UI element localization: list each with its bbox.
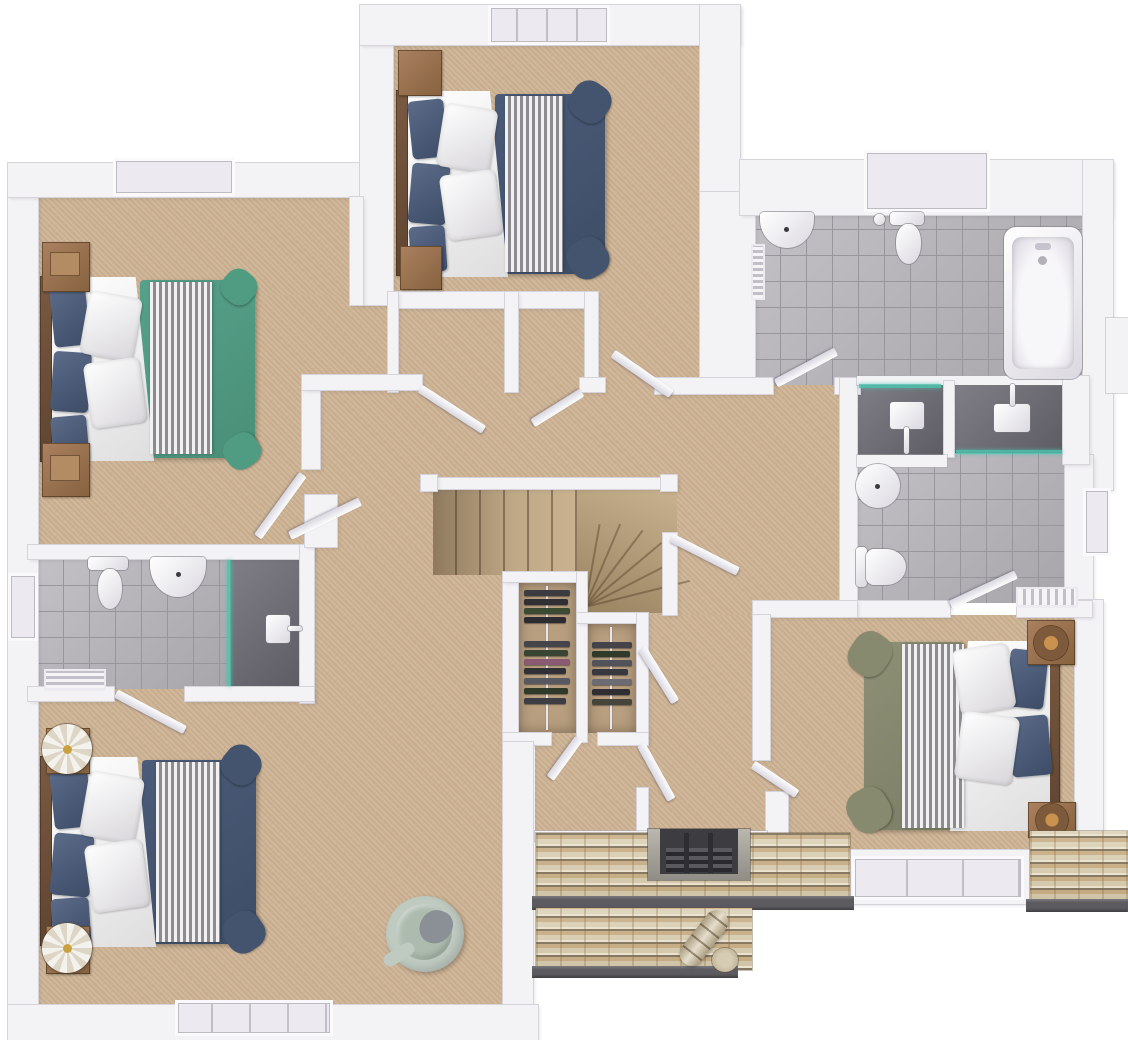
clothes-item	[524, 668, 566, 674]
shower-glass-master-ensuite	[956, 450, 1062, 454]
shower-head-bl-ensuite	[266, 615, 290, 643]
wall-shower-left	[840, 378, 857, 603]
bed-pillow-white	[954, 710, 1021, 785]
clothes-item	[524, 641, 570, 647]
bed-pillow-white	[83, 356, 148, 429]
towel-radiator-master-ensuite	[1018, 589, 1076, 605]
wall-top-middle-bedroom-right	[700, 5, 740, 195]
table-gold-dot-icon	[63, 944, 72, 953]
stair-rail-post-right	[661, 475, 677, 491]
rain-gutter-right	[1026, 899, 1128, 912]
wall-bedroom-bl-right	[503, 742, 533, 1008]
clothes-item	[524, 650, 568, 656]
stair-side-wall	[663, 533, 677, 615]
clothes-item	[524, 608, 570, 614]
wall-closet-bottom-b	[598, 733, 648, 745]
basin-drain-icon	[875, 484, 880, 489]
wall-closet-left	[503, 572, 518, 742]
bed-pillow-white	[439, 168, 504, 241]
wall-shower-divider	[944, 381, 954, 457]
wall-master-left	[753, 615, 770, 760]
bed-runner-striped	[156, 762, 220, 942]
wall-closet-divider	[577, 572, 587, 742]
bed-pillow-white	[79, 770, 146, 845]
exterior-wall-right-master	[1075, 600, 1103, 860]
wall-stub-b	[505, 292, 518, 392]
clothes-item	[524, 688, 568, 694]
stone-ridge-end-cap	[712, 948, 738, 972]
bed-pillow-white	[435, 102, 498, 174]
wall-ensuite-master-bottom-a	[855, 601, 950, 617]
copper-dish-icon	[1034, 626, 1068, 660]
clothes-item	[524, 698, 566, 704]
clothes-item	[524, 678, 570, 684]
shower-glass-bathroom	[859, 384, 941, 388]
shower-head-master	[994, 404, 1030, 432]
stair-rail-post-left	[421, 475, 437, 491]
nightstand-drawer	[50, 455, 80, 481]
window-bedroom-top-left	[113, 158, 235, 196]
wall-landing-left	[302, 375, 422, 390]
stone-roof-section-right	[1030, 831, 1128, 903]
wall-ensuite-bl-bottom-b	[185, 687, 314, 701]
stair-guard-rail	[423, 478, 677, 489]
chimney-post-icon	[684, 833, 689, 873]
wall-stub-c-foot	[580, 378, 605, 392]
shower-stem-bathroom	[904, 427, 909, 454]
clothes-item	[592, 689, 630, 695]
basin-drain-icon	[176, 572, 181, 577]
shower-head-bathroom	[890, 402, 924, 429]
wall-top-middle-bedroom-left	[360, 5, 393, 305]
wall-shower-right	[1063, 376, 1089, 464]
wall-closet-top	[503, 572, 583, 582]
clothes-item	[592, 669, 628, 675]
wall-tm-bottom-a	[388, 292, 505, 308]
clothes-item	[592, 679, 632, 685]
shower-glass-bl-ensuite	[227, 560, 231, 686]
bathtub-drain-icon	[1038, 256, 1047, 265]
wall-tm-bottom-b	[515, 292, 595, 308]
clothes-item	[592, 699, 632, 705]
window-family-bathroom	[864, 150, 990, 212]
toilet-flush-icon	[874, 214, 885, 225]
clothes-item	[524, 599, 568, 605]
table-gold-dot-icon	[63, 745, 72, 754]
window-ensuite-left-wall	[8, 573, 38, 641]
clothes-item	[592, 660, 632, 666]
towel-rail-bathroom	[753, 246, 763, 298]
chimney-grate-icon	[666, 848, 732, 872]
wardrobe-closet-right	[587, 623, 637, 733]
towel-bench-bl-ensuite	[46, 671, 104, 688]
bedside-chest	[400, 246, 442, 290]
window-ensuite-right-wall	[1083, 488, 1111, 556]
toilet-master-ensuite-bowl	[866, 549, 906, 585]
wall-ensuite-bl-right	[300, 545, 314, 703]
clothes-item	[524, 590, 570, 596]
clothes-item	[524, 659, 570, 665]
window-master-bottom	[852, 856, 1024, 900]
toilet-bathroom-bowl	[896, 224, 921, 264]
wall-ensuite-bl-bottom-a	[28, 687, 114, 701]
clothes-item	[592, 642, 632, 648]
window-bedroom-bottom-left	[175, 1000, 333, 1036]
wall-bathroom-corridor	[700, 192, 755, 382]
wall-pier-top-left	[350, 197, 363, 305]
bed-pillow-white	[79, 290, 143, 362]
bed-pillow-white	[951, 642, 1017, 716]
clothes-item	[592, 651, 630, 657]
clothes-item	[524, 617, 566, 623]
rain-gutter-lower	[532, 966, 738, 978]
basin-drain-icon	[784, 227, 789, 232]
wall-closet-right-top	[577, 613, 645, 623]
shower-stem-master	[1010, 384, 1015, 406]
staircase-straight-flight	[433, 490, 583, 575]
chimney-post-icon	[708, 833, 713, 873]
bathtub-faucet-icon	[1035, 243, 1051, 250]
floor-plan-scene	[0, 0, 1128, 1040]
bed-runner-striped	[150, 282, 212, 454]
nightstand-drawer	[50, 252, 80, 276]
exterior-wall-right-bump	[1106, 318, 1128, 393]
toilet-bl-ensuite-bowl	[98, 569, 122, 609]
shower-arm-bl-ensuite	[288, 626, 302, 631]
bed-runner-striped	[505, 96, 563, 272]
wall-stub-c	[585, 292, 598, 382]
wall-closet-right	[637, 613, 648, 743]
bedside-chest	[398, 50, 442, 96]
bed-pillow-white	[84, 838, 151, 913]
window-bedroom-top-middle	[488, 5, 610, 45]
